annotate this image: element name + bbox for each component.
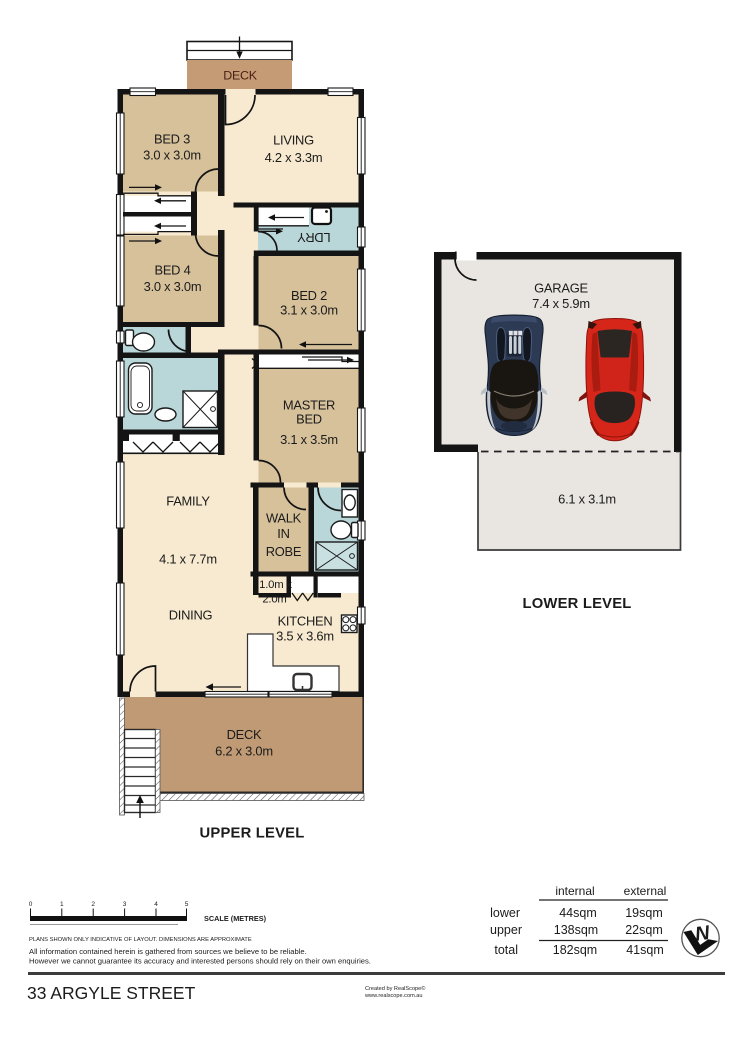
- svg-text:138sqm: 138sqm: [554, 923, 598, 937]
- svg-text:19sqm: 19sqm: [625, 906, 663, 920]
- svg-text:44sqm: 44sqm: [559, 906, 597, 920]
- svg-text:4: 4: [154, 901, 158, 908]
- svg-text:3.1 x 3.5m: 3.1 x 3.5m: [280, 432, 338, 447]
- svg-text:41sqm: 41sqm: [626, 943, 664, 957]
- svg-text:0: 0: [29, 901, 33, 908]
- svg-text:lower: lower: [490, 906, 520, 920]
- svg-text:5: 5: [185, 901, 189, 908]
- svg-text:However we cannot guarantee it: However we cannot guarantee its accuracy…: [29, 957, 371, 966]
- svg-text:DECK: DECK: [227, 727, 262, 742]
- svg-text:SCALE (METRES): SCALE (METRES): [204, 914, 267, 923]
- svg-text:PLANS SHOWN ONLY INDICATIVE OF: PLANS SHOWN ONLY INDICATIVE OF LAYOUT. D…: [29, 937, 252, 943]
- svg-text:1.0m x: 1.0m x: [259, 579, 292, 591]
- svg-text:7.4 x 5.9m: 7.4 x 5.9m: [532, 296, 590, 311]
- svg-text:external: external: [624, 884, 667, 898]
- svg-text:DINING: DINING: [169, 608, 213, 623]
- svg-text:ROBE: ROBE: [266, 544, 302, 559]
- svg-text:1: 1: [60, 901, 64, 908]
- svg-text:BED 2: BED 2: [291, 288, 327, 303]
- svg-text:KITCHEN: KITCHEN: [278, 614, 333, 629]
- svg-text:LOWER LEVEL: LOWER LEVEL: [522, 596, 631, 612]
- svg-text:WALK: WALK: [266, 511, 302, 526]
- svg-text:182sqm: 182sqm: [553, 943, 597, 957]
- svg-text:total: total: [494, 943, 518, 957]
- svg-text:6.1 x 3.1m: 6.1 x 3.1m: [558, 492, 616, 507]
- svg-text:LDRY: LDRY: [297, 230, 331, 245]
- svg-text:BED 4: BED 4: [154, 263, 190, 278]
- svg-text:2: 2: [91, 901, 95, 908]
- svg-text:IN: IN: [277, 526, 289, 541]
- svg-text:3.5 x 3.6m: 3.5 x 3.6m: [276, 629, 334, 644]
- svg-text:LIVING: LIVING: [273, 133, 314, 148]
- svg-text:BED: BED: [296, 412, 322, 427]
- svg-text:3: 3: [123, 901, 127, 908]
- svg-text:MASTER: MASTER: [283, 398, 335, 413]
- svg-text:DECK: DECK: [223, 69, 257, 83]
- svg-text:33 ARGYLE STREET: 33 ARGYLE STREET: [27, 983, 196, 1003]
- svg-text:GARAGE: GARAGE: [534, 281, 588, 296]
- svg-text:3.1 x 3.0m: 3.1 x 3.0m: [280, 303, 338, 318]
- svg-text:UPPER LEVEL: UPPER LEVEL: [200, 826, 305, 842]
- svg-text:All information contained here: All information contained herein is gath…: [29, 947, 307, 956]
- svg-text:6.2 x 3.0m: 6.2 x 3.0m: [215, 744, 273, 759]
- svg-text:3.0 x 3.0m: 3.0 x 3.0m: [144, 279, 202, 294]
- svg-text:2.0m: 2.0m: [262, 594, 286, 606]
- svg-text:3.0 x 3.0m: 3.0 x 3.0m: [143, 148, 201, 163]
- svg-text:BED 3: BED 3: [154, 132, 190, 147]
- svg-text:upper: upper: [490, 923, 522, 937]
- svg-text:internal: internal: [555, 884, 594, 898]
- svg-text:22sqm: 22sqm: [625, 923, 663, 937]
- svg-text:Created by RealScope©: Created by RealScope©: [365, 985, 426, 992]
- svg-text:4.2 x 3.3m: 4.2 x 3.3m: [265, 150, 323, 165]
- svg-text:FAMILY: FAMILY: [166, 494, 210, 509]
- svg-text:4.1 x 7.7m: 4.1 x 7.7m: [159, 552, 217, 567]
- svg-text:www.realscope.com.au: www.realscope.com.au: [364, 993, 423, 999]
